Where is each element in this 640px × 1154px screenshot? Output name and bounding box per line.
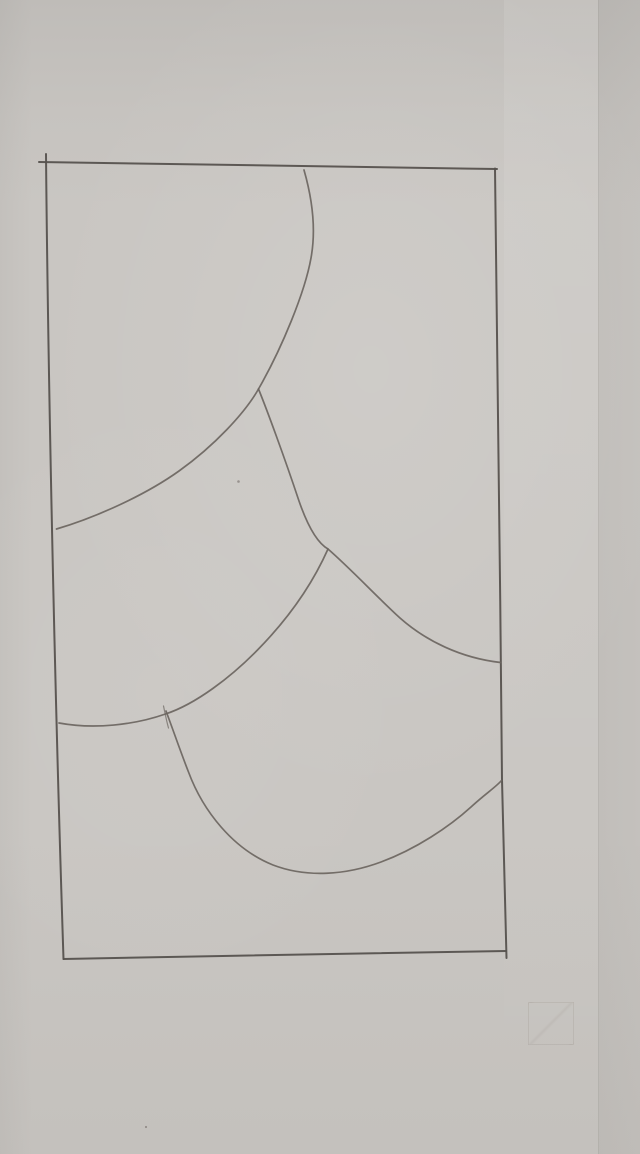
pencil-sketch — [0, 0, 640, 1154]
frame-left-edge — [46, 154, 64, 959]
frame-right-edge — [495, 169, 507, 959]
left-scale-arc — [57, 389, 259, 529]
frame-top-edge — [39, 162, 497, 169]
lower-left-scale-arc — [59, 549, 328, 726]
pencil-speck — [145, 1126, 147, 1128]
middle-scale-arc — [259, 389, 501, 663]
pencil-speck — [237, 480, 240, 483]
frame-bottom-edge — [64, 951, 507, 959]
bottom-scale-arc — [166, 711, 502, 873]
top-scale-arc — [259, 170, 314, 389]
paper-sheet — [0, 0, 640, 1154]
